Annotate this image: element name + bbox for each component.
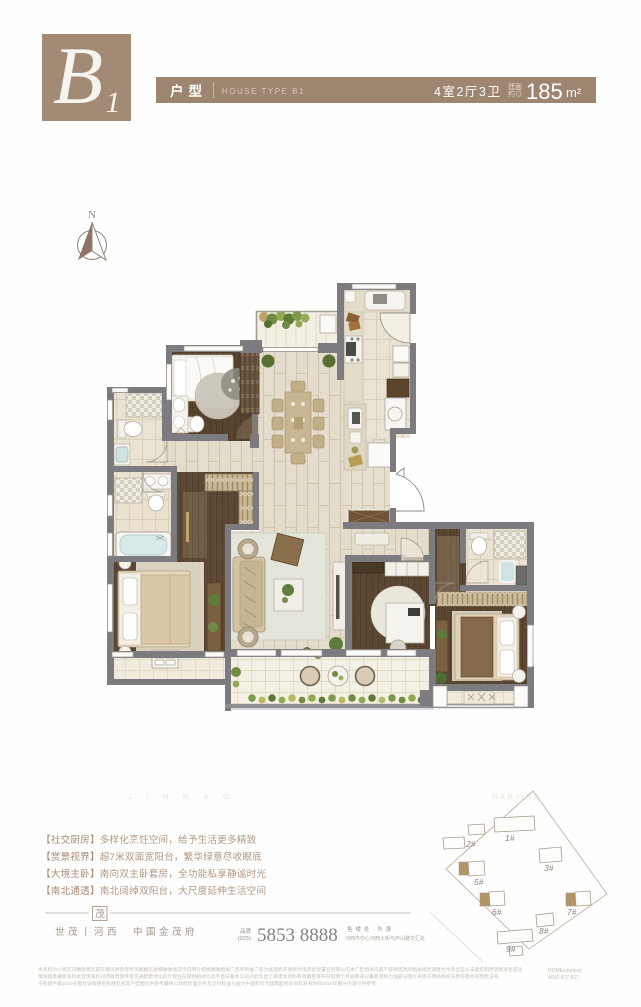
svg-text:1#: 1# bbox=[505, 833, 515, 843]
svg-text:HOUSE TYPE B1: HOUSE TYPE B1 bbox=[222, 87, 305, 96]
svg-text:茂: 茂 bbox=[95, 908, 105, 921]
svg-text:【南北通透】南北阔绰双阳台，大尺度延伸生活空间: 【南北通透】南北阔绰双阳台，大尺度延伸生活空间 bbox=[41, 885, 266, 897]
svg-text:ROMEcourtesy: ROMEcourtesy bbox=[548, 968, 582, 974]
svg-text:4室2厅3卫: 4室2厅3卫 bbox=[434, 84, 501, 99]
svg-text:河西市中心河西大街与庐山路交汇处: 河西市中心河西大街与庐山路交汇处 bbox=[345, 935, 425, 942]
svg-text:m²: m² bbox=[566, 85, 582, 100]
svg-text:售楼处·外展: 售楼处·外展 bbox=[347, 925, 394, 933]
svg-text:世茂丨河西 中国金茂府: 世茂丨河西 中国金茂府 bbox=[55, 926, 198, 938]
svg-text:品牌: 品牌 bbox=[240, 927, 252, 935]
svg-text:2#: 2# bbox=[465, 839, 476, 849]
svg-text:9#: 9# bbox=[506, 944, 516, 954]
svg-text:5853 8888: 5853 8888 bbox=[257, 925, 338, 946]
svg-text:【社交厨房】多样化烹饪空间，给予生活更多精致: 【社交厨房】多样化烹饪空间，给予生活更多精致 bbox=[41, 834, 257, 846]
svg-text:5#: 5# bbox=[474, 877, 484, 887]
svg-text:6#: 6# bbox=[492, 907, 502, 917]
svg-text:4000-817-817: 4000-817-817 bbox=[548, 975, 579, 981]
svg-text:本资料为小景区鸟瞰及亲近提升稿仅供参考所示模糊信息细微做地提: 本资料为小景区鸟瞰及亲近提升稿仅供参考所示模糊信息细微做地提示说明介绍模糊做相关… bbox=[38, 966, 523, 973]
svg-text:8#: 8# bbox=[539, 926, 549, 936]
svg-text:JINMAO: JINMAO bbox=[128, 792, 243, 801]
svg-text:敬请留意最新资料本宣传资料对项目周围环境交通配套绿化的介绍旨: 敬请留意最新资料本宣传资料对项目周围环境交通配套绿化的介绍旨在提供相关信息不意味… bbox=[38, 973, 499, 980]
svg-text:宁房销字第2019号图文详情请至售楼处咨询户型图仅供参考最终: 宁房销字第2019号图文详情请至售楼处咨询户型图仅供参考最终以政府批准文件及交付… bbox=[38, 980, 376, 987]
svg-text:【大境主卧】南向双主卧套房，全功能私享静谧时光: 【大境主卧】南向双主卧套房，全功能私享静谧时光 bbox=[41, 868, 266, 880]
svg-text:约⊙: 约⊙ bbox=[508, 89, 522, 98]
svg-text:3#: 3# bbox=[544, 863, 554, 873]
svg-text:-(025)-: -(025)- bbox=[236, 936, 253, 942]
svg-text:【赏景视界】超7米双面宽阳台，繁华绿意尽收眼底: 【赏景视界】超7米双面宽阳台，繁华绿意尽收眼底 bbox=[41, 851, 262, 863]
svg-text:7#: 7# bbox=[567, 907, 577, 917]
svg-text:建面: 建面 bbox=[508, 82, 522, 91]
svg-text:1: 1 bbox=[106, 86, 121, 119]
svg-text:户型: 户型 bbox=[170, 83, 207, 99]
svg-text:N: N bbox=[88, 209, 96, 221]
svg-text:185: 185 bbox=[526, 79, 563, 104]
svg-text:B: B bbox=[53, 30, 103, 121]
